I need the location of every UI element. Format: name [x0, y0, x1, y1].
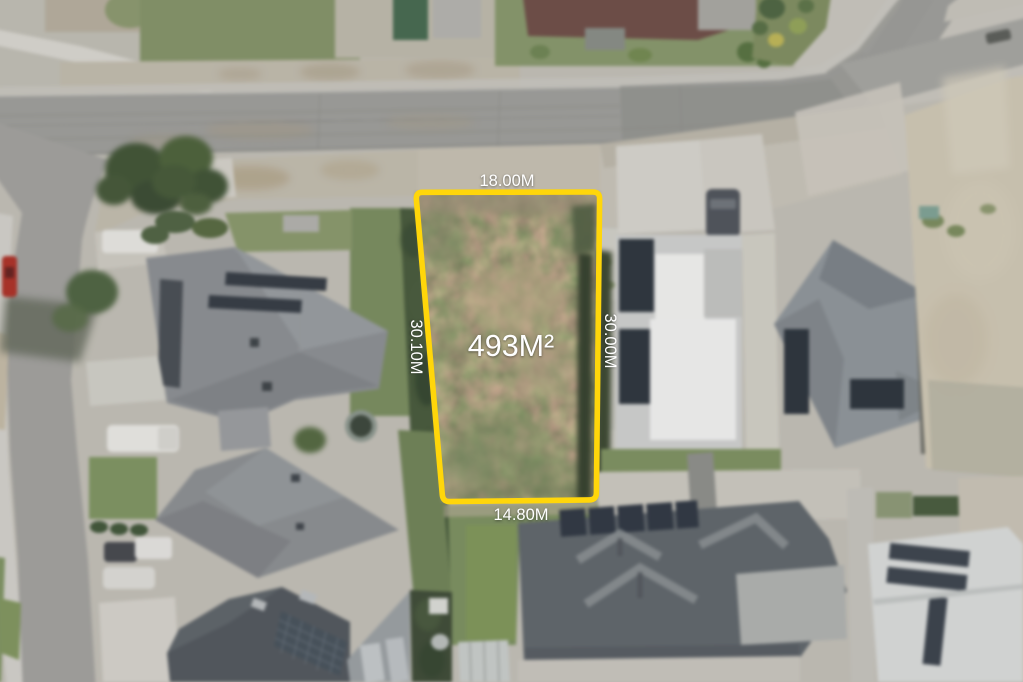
svg-text:30.10M: 30.10M — [407, 319, 425, 374]
svg-text:30.00M: 30.00M — [601, 313, 619, 368]
svg-text:18.00M: 18.00M — [479, 172, 534, 190]
svg-text:493M²: 493M² — [468, 329, 554, 363]
svg-text:14.80M: 14.80M — [493, 506, 548, 524]
